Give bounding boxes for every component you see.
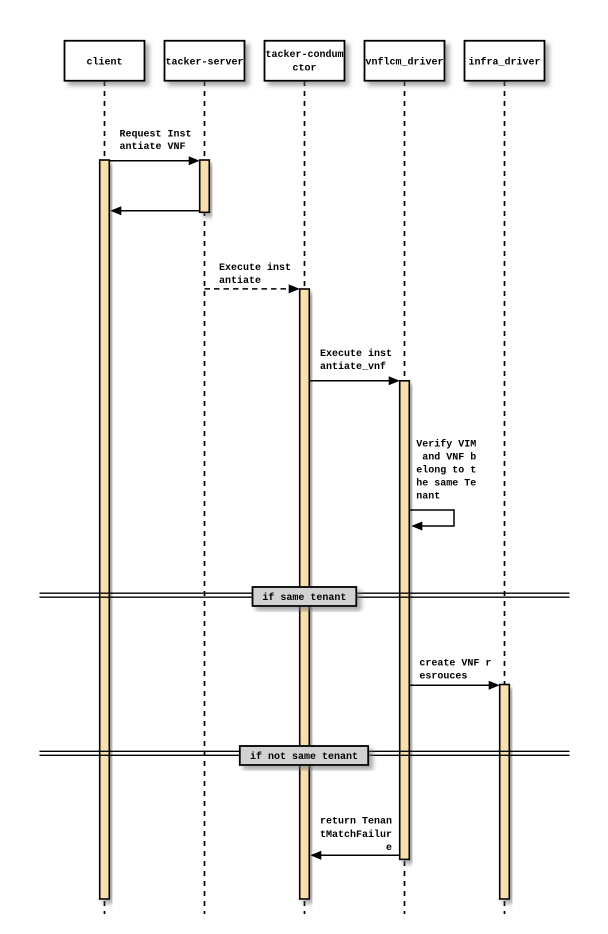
svg-text:if not same tenant: if not same tenant xyxy=(250,751,358,763)
svg-text:nant: nant xyxy=(416,492,440,503)
svg-text:infra_driver: infra_driver xyxy=(468,56,540,68)
svg-text:e: e xyxy=(386,843,392,854)
svg-text:and VNF b: and VNF b xyxy=(416,452,476,464)
svg-text:antiate VNF: antiate VNF xyxy=(120,141,186,153)
svg-text:antiate: antiate xyxy=(219,275,261,287)
svg-text:esrouces: esrouces xyxy=(419,672,467,683)
svg-text:antiate_vnf: antiate_vnf xyxy=(320,361,386,373)
svg-text:Execute inst: Execute inst xyxy=(219,262,291,274)
svg-text:tacker-condum: tacker-condum xyxy=(265,49,343,61)
svg-text:ctor: ctor xyxy=(292,63,316,74)
svg-text:Verify VIM: Verify VIM xyxy=(416,439,476,451)
svg-text:if same tenant: if same tenant xyxy=(262,592,346,604)
svg-text:vnflcm_driver: vnflcm_driver xyxy=(365,56,443,68)
svg-text:create VNF r: create VNF r xyxy=(419,659,491,670)
svg-text:tacker-server: tacker-server xyxy=(165,56,243,68)
svg-text:elong to t: elong to t xyxy=(416,465,476,477)
svg-text:return Tenan: return Tenan xyxy=(320,817,392,828)
svg-text:he same Te: he same Te xyxy=(416,478,476,490)
svg-text:client: client xyxy=(86,56,122,68)
svg-text:Request Inst: Request Inst xyxy=(120,129,192,140)
svg-text:Execute inst: Execute inst xyxy=(320,348,392,360)
svg-text:tMatchFailur: tMatchFailur xyxy=(320,829,392,841)
